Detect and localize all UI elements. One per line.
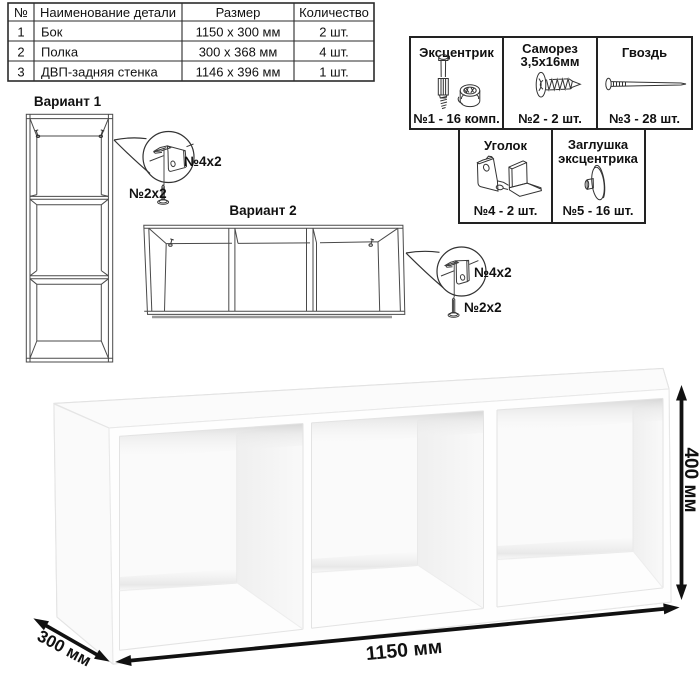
svg-text:№: № [14, 5, 28, 20]
svg-text:Количество: Количество [299, 5, 369, 20]
svg-text:2 шт.: 2 шт. [319, 25, 348, 40]
svg-text:Бок: Бок [41, 25, 63, 40]
svg-text:ДВП-задняя стенка: ДВП-задняя стенка [41, 65, 158, 80]
svg-text:Эксцентрик: Эксцентрик [419, 45, 494, 60]
svg-text:300 x 368 мм: 300 x 368 мм [199, 45, 278, 60]
svg-text:№2х2: №2х2 [129, 186, 167, 201]
svg-text:Гвоздь: Гвоздь [622, 45, 667, 60]
svg-text:№3 - 28 шт.: №3 - 28 шт. [609, 111, 680, 126]
svg-text:400 мм: 400 мм [680, 447, 700, 512]
svg-text:Уголок: Уголок [484, 138, 527, 153]
svg-text:1146 x 396 мм: 1146 x 396 мм [196, 65, 281, 80]
svg-text:4 шт.: 4 шт. [319, 45, 348, 60]
svg-text:№5 - 16 шт.: №5 - 16 шт. [562, 203, 633, 218]
svg-text:Вариант 1: Вариант 1 [34, 94, 102, 109]
svg-text:№1 - 16 комп.: №1 - 16 комп. [413, 111, 500, 126]
svg-text:Размер: Размер [216, 5, 261, 20]
svg-text:Вариант 2: Вариант 2 [229, 203, 296, 218]
svg-text:Полка: Полка [41, 45, 79, 60]
svg-text:№4х2: №4х2 [184, 154, 222, 169]
svg-text:3: 3 [17, 65, 24, 80]
svg-text:3,5х16мм: 3,5х16мм [521, 54, 580, 69]
svg-text:эксцентрика: эксцентрика [558, 151, 639, 166]
svg-text:2: 2 [17, 45, 24, 60]
svg-text:Наименование детали: Наименование детали [40, 5, 176, 20]
svg-text:№4х2: №4х2 [474, 265, 512, 280]
svg-text:1: 1 [17, 25, 24, 40]
svg-text:1150 x 300 мм: 1150 x 300 мм [196, 25, 281, 40]
svg-text:№2 - 2 шт.: №2 - 2 шт. [518, 111, 582, 126]
svg-text:Заглушка: Заглушка [568, 137, 629, 152]
svg-text:1 шт.: 1 шт. [319, 65, 348, 80]
svg-text:№4 - 2 шт.: №4 - 2 шт. [474, 203, 538, 218]
svg-text:№2х2: №2х2 [464, 300, 502, 315]
